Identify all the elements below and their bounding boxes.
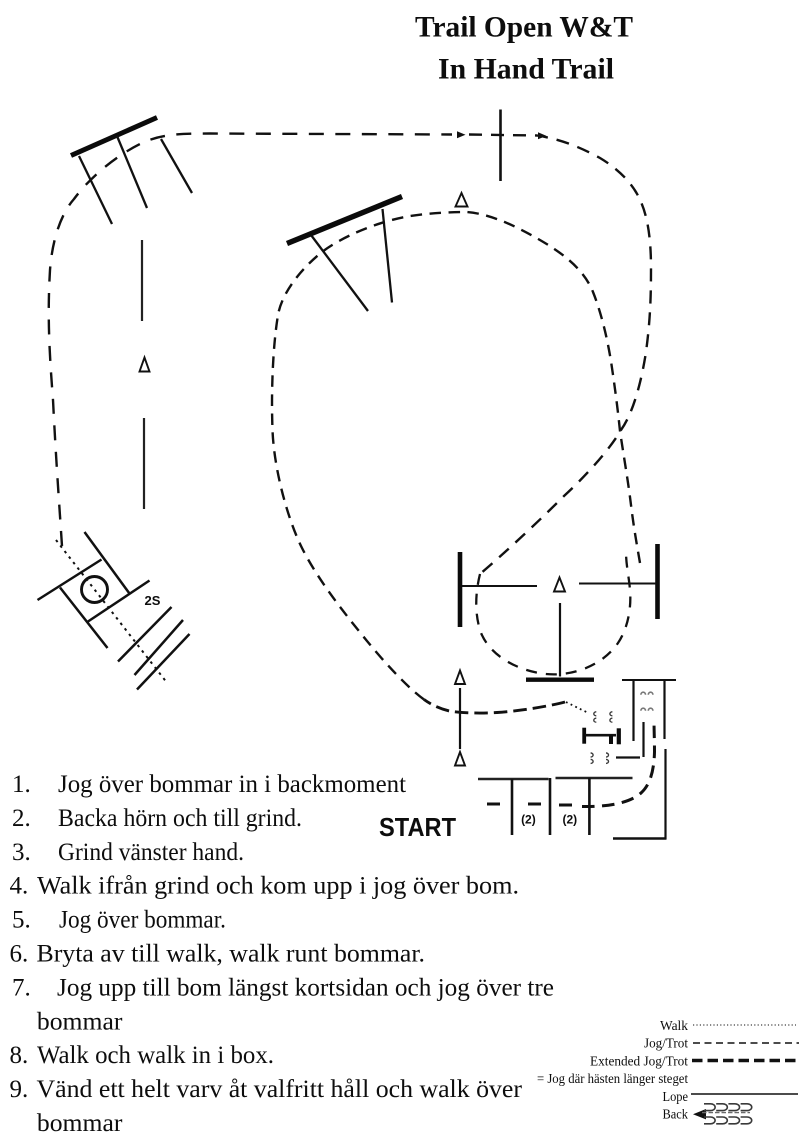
svg-text:Extended Jog/Trot: Extended Jog/Trot	[590, 1054, 688, 1069]
svg-text:8.: 8.	[10, 1042, 29, 1069]
svg-text:Trail Open W&T: Trail Open W&T	[415, 11, 633, 44]
svg-text:= Jog där hästen länger steget: = Jog där hästen länger steget	[537, 1072, 688, 1087]
svg-text:5.: 5.	[12, 907, 31, 934]
svg-text:Back: Back	[663, 1108, 689, 1123]
svg-text:In Hand Trail: In Hand Trail	[438, 53, 614, 86]
svg-text:bommar: bommar	[37, 1110, 123, 1137]
svg-text:7.: 7.	[12, 974, 31, 1001]
svg-text:Walk och walk in i box.: Walk och walk in i box.	[37, 1042, 274, 1069]
svg-text:2.: 2.	[12, 805, 31, 832]
svg-text:Walk: Walk	[660, 1019, 688, 1034]
svg-text:Vänd ett helt varv åt valfritt: Vänd ett helt varv åt valfritt håll och …	[37, 1076, 523, 1103]
svg-text:(2): (2)	[521, 813, 536, 827]
svg-text:2S: 2S	[145, 593, 161, 608]
svg-text:Jog/Trot: Jog/Trot	[644, 1037, 688, 1052]
svg-text:START: START	[379, 812, 456, 842]
svg-text:Jog upp till bom längst kortsi: Jog upp till bom längst kortsidan och jo…	[57, 974, 554, 1001]
svg-text:Jog över bommar in i backmomen: Jog över bommar in i backmoment	[58, 771, 406, 798]
svg-text:6.: 6.	[10, 941, 29, 968]
svg-text:3.: 3.	[12, 839, 31, 866]
svg-text:Jog över bommar.: Jog över bommar.	[59, 907, 226, 934]
svg-text:(2): (2)	[562, 813, 577, 827]
svg-text:bommar: bommar	[37, 1008, 123, 1035]
svg-text:1.: 1.	[12, 771, 31, 798]
svg-text:Lope: Lope	[663, 1090, 689, 1105]
svg-text:Grind vänster hand.: Grind vänster hand.	[58, 839, 244, 866]
svg-text:Bryta av till walk, walk runt: Bryta av till walk, walk runt bommar.	[37, 941, 426, 968]
svg-text:9.: 9.	[10, 1076, 29, 1103]
svg-text:Backa hörn och till grind.: Backa hörn och till grind.	[58, 805, 302, 832]
svg-text:4.: 4.	[10, 873, 29, 900]
svg-text:Walk ifrån grind och kom upp i: Walk ifrån grind och kom upp i jog över …	[37, 873, 519, 900]
